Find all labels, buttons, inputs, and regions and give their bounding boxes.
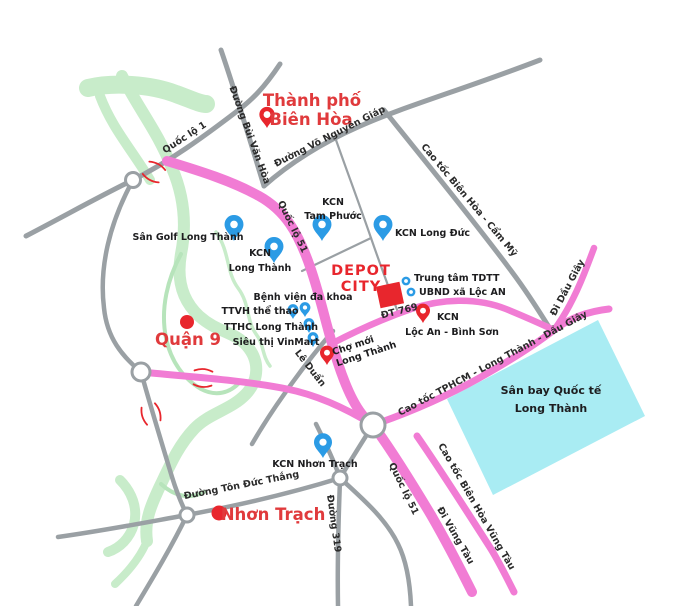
label-kcn-long-thanh-2: Long Thành xyxy=(229,263,292,274)
river-blob-sw xyxy=(108,480,135,552)
label-vinmart: Siêu thị VinMart xyxy=(233,337,320,348)
kcn-loc-an-pin-icon xyxy=(416,304,430,323)
quan-9-label: Quận 9 xyxy=(155,330,221,349)
label-kcn-tam-phuoc-1: KCN xyxy=(322,197,344,208)
label-ubnd: UBND xã Lộc AN xyxy=(419,287,506,298)
label-kcn-loc-an-1: KCN xyxy=(437,312,459,323)
label-kcn-nhon-trach: KCN Nhơn Trạch xyxy=(272,459,358,470)
roundabout-ql1 xyxy=(126,173,141,188)
trung-tam-tdtt-marker-icon xyxy=(402,277,411,286)
roundabout-central xyxy=(361,413,385,437)
airport-label-line2: Long Thành xyxy=(515,402,588,415)
roundabout-319 xyxy=(333,471,347,485)
label-kcn-long-duc: KCN Long Đức xyxy=(395,228,470,239)
ubnd-marker-icon xyxy=(407,288,416,297)
map-canvas: Thành phố Biên Hòa Quận 9 Nhơn Trạch DEP… xyxy=(0,0,680,606)
roundabout-ton-duc-thang xyxy=(180,508,194,522)
label-trung-tam-tdtt: Trung tâm TDTT xyxy=(414,273,500,284)
label-benh-vien: Bệnh viện đa khoa xyxy=(253,292,352,303)
label-kcn-tam-phuoc-2: Tam Phước xyxy=(304,211,362,222)
label-tthc: TTHC Long Thành xyxy=(224,322,318,333)
kcn-long-duc-pin-icon xyxy=(374,215,393,241)
roundabout-west xyxy=(132,363,150,381)
quan-9-dot xyxy=(180,315,194,329)
depot-label-line1: DEPOT xyxy=(331,263,391,279)
label-cao-toc-bien-hoa-cam-my: Cao tốc Biên Hòa - Cẩm Mỹ xyxy=(418,142,519,260)
road-west-connector xyxy=(103,180,141,372)
label-kcn-long-thanh-1: KCN xyxy=(249,248,271,259)
label-ton-duc-thang: Đường Tôn Đức Thắng xyxy=(183,469,300,502)
label-cho-moi: Chợ mới Long Thành xyxy=(331,328,398,369)
road-branch-se xyxy=(340,478,411,606)
nhon-trach-label: Nhơn Trạch xyxy=(221,505,326,524)
label-san-golf: Sân Golf Long Thành xyxy=(133,232,244,243)
location-map: Thành phố Biên Hòa Quận 9 Nhơn Trạch DEP… xyxy=(0,0,680,606)
airport-label-line1: Sân bay Quốc tế xyxy=(501,384,602,397)
label-ttvh: TTVH thể thao xyxy=(221,305,299,317)
bien-hoa-label-line1: Thành phố xyxy=(263,91,362,110)
benh-vien-pin-icon xyxy=(300,302,311,317)
label-kcn-loc-an-2: Lộc An - Bình Sơn xyxy=(405,327,499,338)
